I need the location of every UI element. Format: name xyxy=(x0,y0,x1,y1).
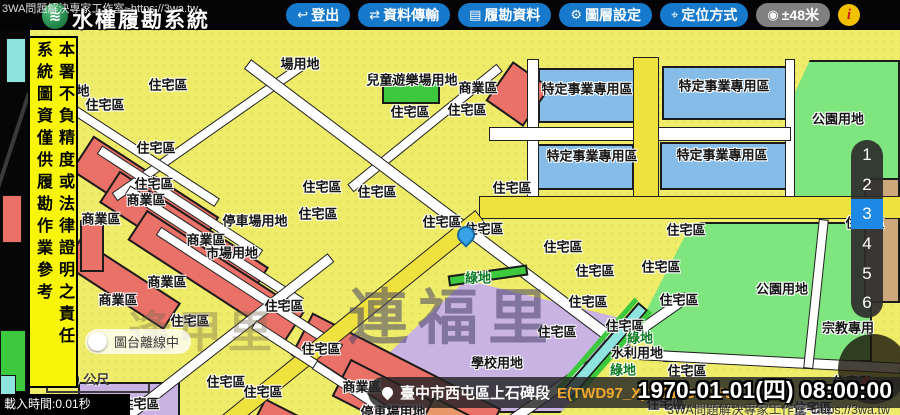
location-pin-icon xyxy=(380,385,396,401)
offline-label: 圖台離線中 xyxy=(114,332,179,351)
toolbar-button-5[interactable]: ⌖定位方式 xyxy=(660,3,748,27)
map-label: 公園用地 xyxy=(756,279,808,298)
map-label: 綠地 xyxy=(610,360,636,379)
map-label: 地 xyxy=(76,81,89,100)
offline-toggle[interactable]: 圖台離線中 xyxy=(85,329,191,354)
map-canvas[interactable]: 住宅區住宅區住宅區住宅區住宅區住宅區住宅區住宅區住宅區住宅區住宅區住宅區住宅區住… xyxy=(0,30,900,415)
map-label: 住宅區 xyxy=(148,75,187,94)
road xyxy=(480,197,900,218)
map-label: 場用地 xyxy=(280,54,319,73)
toolbar: ↩登出⇄資料傳輸▤履勘資料⚙圖層設定⌖定位方式◉±48米i xyxy=(286,3,860,27)
load-time-label: 載入時間:0.01秒 xyxy=(0,394,130,415)
toolbar-button-label: 履勘資料 xyxy=(484,5,540,25)
toggle-knob-icon xyxy=(88,332,107,351)
map-label: 綠地 xyxy=(627,328,653,347)
map-label: 住宅區 xyxy=(641,257,680,276)
map-label: 住宅區 xyxy=(85,95,124,114)
map-label: 住宅區 xyxy=(357,182,396,201)
map-label: 住宅區 xyxy=(659,290,698,309)
gps-accuracy-badge[interactable]: ◉±48米 xyxy=(756,3,830,27)
map-fragment xyxy=(2,195,22,243)
toolbar-button-label: 定位方式 xyxy=(681,5,737,25)
toolbar-button-3[interactable]: ▤履勘資料 xyxy=(458,3,551,27)
toolbar-button-4[interactable]: ⚙圖層設定 xyxy=(559,3,652,27)
toolbar-button-1[interactable]: ↩登出 xyxy=(286,3,350,27)
map-label: 特定事業專用區 xyxy=(546,146,637,165)
map-label: 商業區 xyxy=(458,78,497,97)
map-label: 住宅區 xyxy=(492,178,531,197)
map-label: 住宅區 xyxy=(666,220,705,239)
map-label: 商業區 xyxy=(81,209,120,228)
zone-rB3 xyxy=(251,398,349,415)
toolbar-button-icon: ▤ xyxy=(469,7,481,23)
disclaimer-text-left: 系統圖資僅供履勘作業參考 xyxy=(31,41,53,383)
district-label: 連福里 xyxy=(348,270,558,357)
map-label: 商業區 xyxy=(147,272,186,291)
disclaimer-panel: 系統圖資僅供履勘作業參考 本署不負精度或法律證明之責任 xyxy=(28,36,78,388)
zone-rL5 xyxy=(80,220,104,272)
map-label: 市場用地 xyxy=(206,243,258,262)
map-fragment xyxy=(0,92,30,198)
map-label: 住宅區 xyxy=(568,292,607,311)
map-label: 住宅區 xyxy=(301,339,340,358)
toolbar-button-label: 登出 xyxy=(311,5,339,25)
watermark-bottom: 3WA問題解決專家工作室~https://3wa.tw xyxy=(667,399,890,415)
zoom-level-4[interactable]: 4 xyxy=(851,229,883,259)
toolbar-button-2[interactable]: ⇄資料傳輸 xyxy=(358,3,450,27)
zoom-level-panel: 123456 xyxy=(851,140,883,318)
map-label: 公園用地 xyxy=(812,109,864,128)
zoom-level-2[interactable]: 2 xyxy=(851,170,883,200)
watermark-top: 3WA問題解決專家工作室~https://3wa.tw xyxy=(2,0,198,16)
zoom-level-3[interactable]: 3 xyxy=(851,199,883,229)
location-place: 臺中市西屯區上石碑段 xyxy=(400,382,550,403)
map-label: 住宅區 xyxy=(447,100,486,119)
toolbar-button-label: 資料傳輸 xyxy=(383,5,439,25)
toolbar-button-icon: ⚙ xyxy=(570,7,582,23)
map-fragment xyxy=(6,38,26,83)
map-label: 停車場用地 xyxy=(222,211,287,230)
zoom-level-1[interactable]: 1 xyxy=(851,140,883,170)
toolbar-button-icon: ⌖ xyxy=(671,7,678,23)
toolbar-button-label: 圖層設定 xyxy=(585,5,641,25)
map-label: 兒童遊樂場用地 xyxy=(366,70,457,89)
map-label: 住宅區 xyxy=(243,382,282,401)
info-button[interactable]: i xyxy=(838,4,860,26)
map-edge-strip xyxy=(0,30,30,415)
map-label: 住宅區 xyxy=(206,372,245,391)
map-label: 特定事業專用區 xyxy=(678,76,769,95)
map-label: 住宅區 xyxy=(575,261,614,280)
map-label: 住宅區 xyxy=(298,204,337,223)
map-label: 住宅區 xyxy=(136,138,175,157)
toolbar-button-icon: ⇄ xyxy=(369,7,380,23)
map-label: 商業區 xyxy=(126,190,165,209)
disclaimer-text-right: 本署不負精度或法律證明之責任 xyxy=(53,41,75,383)
map-label: 特定事業專用區 xyxy=(676,145,767,164)
app-window: 住宅區住宅區住宅區住宅區住宅區住宅區住宅區住宅區住宅區住宅區住宅區住宅區住宅區住… xyxy=(0,0,900,415)
map-label: 住宅區 xyxy=(302,177,341,196)
map-label: 住宅區 xyxy=(543,237,582,256)
map-label: 特定事業專用區 xyxy=(541,79,632,98)
map-label: 住宅區 xyxy=(422,212,461,231)
map-label: 住宅區 xyxy=(390,102,429,121)
road xyxy=(634,58,658,208)
zoom-level-5[interactable]: 5 xyxy=(851,259,883,289)
toolbar-button-icon: ↩ xyxy=(297,7,308,23)
gps-signal-icon: ◉ xyxy=(767,7,778,23)
gps-accuracy-label: ±48米 xyxy=(782,5,819,25)
